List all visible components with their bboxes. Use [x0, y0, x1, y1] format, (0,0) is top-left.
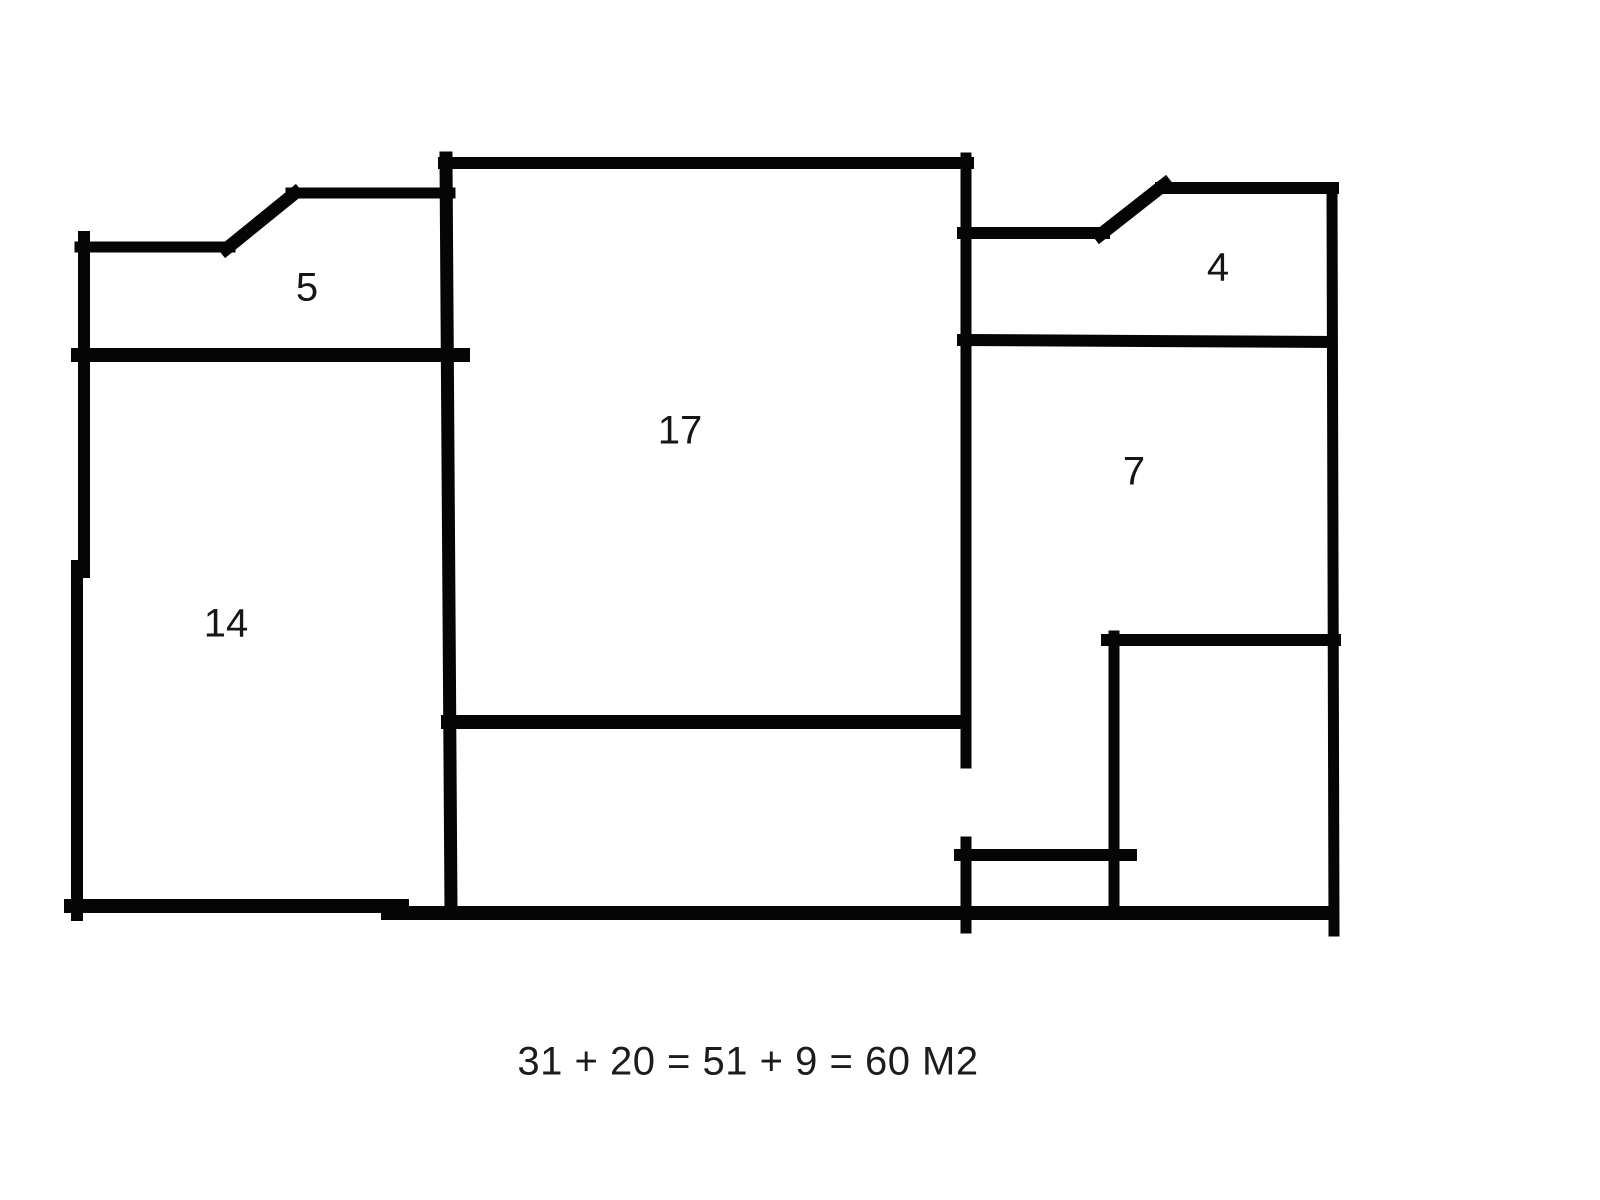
wall-room5-top-diagonal [226, 193, 295, 249]
room-label-17: 17 [658, 409, 703, 454]
floor-plan: 5174147 31 + 20 = 51 + 9 = 60 M2 [0, 0, 1600, 1200]
room-label-7: 7 [1123, 450, 1145, 495]
room-label-4: 4 [1207, 246, 1229, 291]
wall-room4-bottom [963, 340, 1331, 342]
room-label-14: 14 [204, 602, 249, 647]
floor-plan-drawing [0, 0, 1600, 1200]
room-label-5: 5 [296, 266, 318, 311]
wall-block17-left-wall [446, 158, 451, 910]
wall-right-outer-wall [1332, 188, 1334, 931]
area-formula-text: 31 + 20 = 51 + 9 = 60 M2 [517, 1040, 978, 1085]
